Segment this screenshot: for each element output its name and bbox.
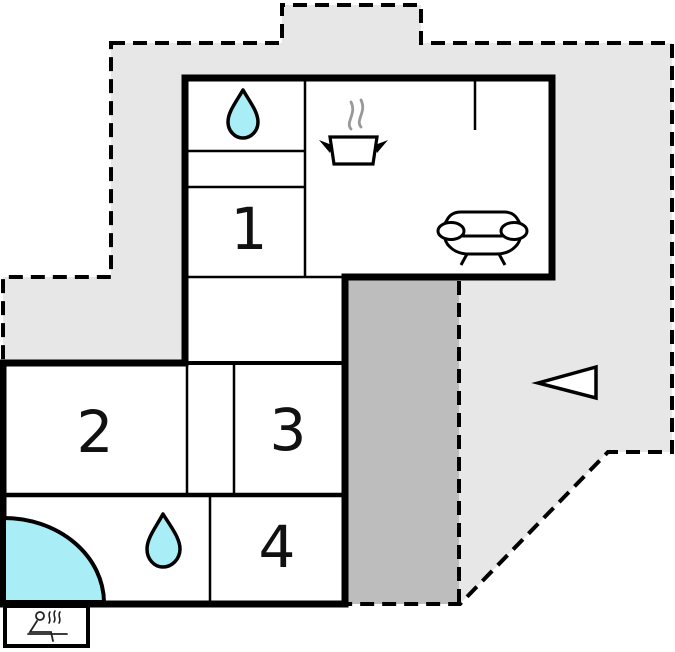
- floor-plan: 1 2 3 4: [0, 0, 675, 652]
- sauna-annex: [5, 606, 88, 646]
- room-4-label: 4: [259, 513, 296, 581]
- terrace: [345, 277, 459, 604]
- sauna-steam: [54, 611, 55, 622]
- sofa-armrest: [438, 223, 464, 240]
- sauna-steam: [49, 612, 50, 623]
- room-3-label: 3: [270, 396, 307, 464]
- room-2-label: 2: [77, 398, 114, 466]
- sauna-steam: [59, 612, 60, 623]
- pot-body: [330, 137, 377, 164]
- sofa-armrest: [501, 223, 527, 240]
- room-1-label: 1: [231, 195, 268, 263]
- sauna-room: [5, 606, 88, 646]
- sauna-person-head: [36, 612, 44, 620]
